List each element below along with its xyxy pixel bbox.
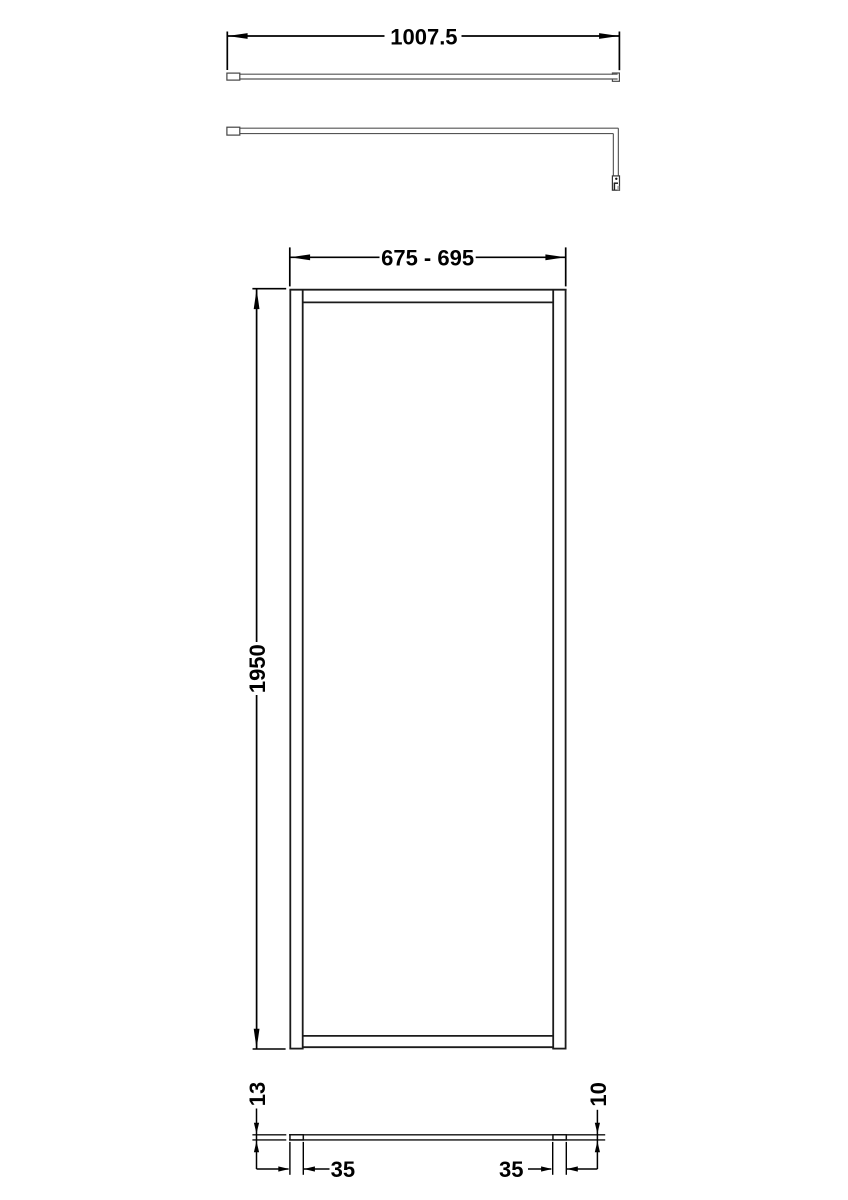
svg-text:35: 35 — [499, 1157, 523, 1182]
svg-text:10: 10 — [586, 1082, 611, 1106]
svg-text:35: 35 — [331, 1157, 355, 1182]
svg-text:675 - 695: 675 - 695 — [381, 246, 474, 271]
svg-text:1007.5: 1007.5 — [390, 25, 457, 50]
svg-text:1950: 1950 — [245, 644, 270, 693]
svg-text:13: 13 — [245, 1082, 270, 1106]
